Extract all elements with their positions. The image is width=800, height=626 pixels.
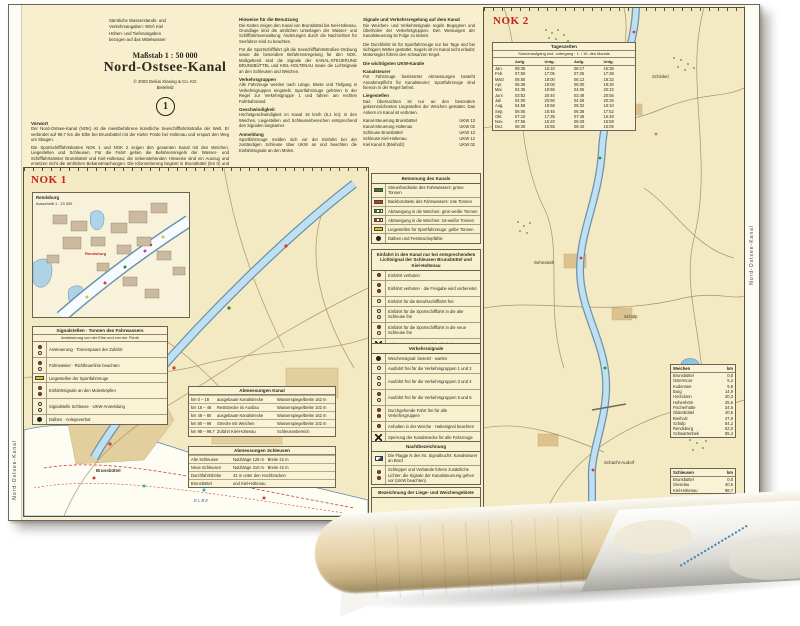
chart-sheet: Nord-Ostsee-Kanal Nord-Ostsee-Kanal Sämt… [8, 4, 760, 521]
inset-title: Rendsburg [36, 195, 59, 200]
city-label: Brunsbüttel [96, 468, 121, 473]
table-subtitle: Sonnenaufgang und -untergang · 1. / 15. … [493, 51, 635, 58]
bridges [590, 94, 626, 410]
legend-row: Ausfahrt frei für die Verkehrsgruppen 1 … [372, 363, 480, 373]
table-title: Abmessungen Schleusen [189, 447, 335, 455]
legend-symbol [372, 452, 386, 465]
town-label: Schacht-Audorf [604, 460, 634, 465]
copyright-line: © 2003 Delius Klasing & Co. KG [133, 79, 196, 84]
issuer-note-1: Sämtliche Wasserstands- undVerkehrsangab… [109, 18, 221, 29]
legend-symbol [372, 323, 386, 338]
roll-map-land [728, 532, 800, 582]
copyright-place: Bielefeld [157, 85, 174, 90]
note-section: Die wichtigsten UKW-Kanäle [363, 61, 475, 66]
legend-symbol [33, 358, 47, 373]
sheet-number-badge: 1 [156, 97, 175, 116]
legend-symbol [372, 390, 386, 405]
legend-symbol [372, 271, 386, 280]
table-row: Durchfahrtshöhe42 m unter den Hochbrücke… [189, 471, 335, 479]
legend-row: Schlepper und Verbände führen zusätzlich… [372, 465, 480, 484]
legend-symbol [33, 399, 47, 414]
nok1-legend-box: Signalstellen · Tonnen des Fahrwassers A… [32, 326, 168, 425]
issuer-line: Verkehrsangaben: WSÄ Kiel [109, 24, 221, 30]
legend-row: Einfahrt für die Sportschifffahrt in die… [372, 306, 480, 322]
sidings-distance-table: Weichen km Brunsbüttel0,0Ostermoor5,2Kud… [670, 364, 736, 438]
daylight-timetable: Tageszeiten Sonnenaufgang und -untergang… [492, 42, 636, 131]
legend-section-traffic-signals: Verkehrssignale Weichensignal: besetzt ·… [371, 343, 481, 456]
legend-row: Einfahrt verboten · die Freigabe wird vo… [372, 280, 480, 296]
legend-symbol [33, 383, 47, 398]
note-section: LiegestellenDas Übernachten ist nur an d… [363, 93, 475, 115]
table-header: Weichen km [671, 365, 735, 373]
note-section: KanalsteurerFür Fahrzeuge bestimmter Abm… [363, 69, 475, 91]
inset-scale: Ausschnitt 1 : 20 000 [36, 201, 72, 206]
panel-label-nok2: NOK 2 [493, 15, 529, 27]
town-label: Schülp [624, 314, 637, 319]
notes-column-1: Hinweise für die BenutzungDie Karten zei… [239, 17, 357, 156]
legend-box-title: Signalstellen · Tonnen des Fahrwassers [33, 327, 167, 335]
legend-row: Backbordseite des Fahrwassers: rote Tonn… [372, 197, 480, 206]
legend-symbol [372, 374, 386, 389]
map-panel-nok1: NOK 1 Brunsbüttel ELBE [23, 167, 369, 517]
table-title: Tageszeiten [493, 43, 635, 51]
note-section: VerkehrsgruppenAlle Fahrzeuge werden nac… [239, 77, 357, 104]
table-row: km 98 – 98,7Zufahrt Kiel-HoltenauSchleus… [189, 427, 335, 435]
legend-symbol [372, 422, 386, 431]
legend-row: Signalstelle Schleuse · UKW-Anmeldung [33, 398, 167, 414]
legend-section-night-marks: Nachtbezeichnung Die Flagge N des Int. S… [371, 441, 481, 485]
timetable-row: Dez.08:3015:5508:4016:05 [493, 124, 635, 129]
town-label: Schinkel [652, 74, 669, 79]
legend-symbol [372, 198, 386, 206]
legend-symbol [372, 354, 386, 363]
legend-symbol [372, 307, 386, 322]
legend-row: Ansteuerung · Tonnenpaare der Zufahrt [33, 342, 167, 357]
inset-map-drawing [33, 193, 189, 317]
roll-body [313, 486, 800, 596]
chart-title: Nord-Ostsee-Kanal [71, 60, 259, 76]
legend-row: Einfahrt für die Sportschifffahrt in die… [372, 322, 480, 338]
table-row: Schwartenbek85,4 [671, 431, 735, 436]
roll-fold-lines [373, 516, 586, 599]
legend-symbol [33, 374, 47, 382]
legend-row: Abzweigung in die Weichen: rot-weiße Ton… [372, 215, 480, 224]
note-section: AnmeldungSportfahrzeuge melden sich vor … [239, 132, 357, 154]
note-section: Signale und Verkehrsregelung auf dem Kan… [363, 17, 475, 39]
legend-row: Einfahrt verboten [372, 271, 480, 280]
legend-row: Dalben · Anlegeverbot [33, 414, 167, 424]
note-section: Die Durchfahrt ist für Sportfahrzeuge nu… [363, 42, 475, 58]
legend-row: Ausfahrt frei für die Verkehrsgruppen 5 … [372, 389, 480, 405]
issuer-note-2: Höhen- und Tiefenangabenbezogen auf das … [109, 31, 221, 42]
vhf-channel-list: Kanal-Steuerung BrunsbüttelUKW 13Kanal-S… [363, 118, 475, 148]
legend-section-entry-signals: Einfahrt in den Kanal nur bei entspreche… [371, 249, 481, 351]
legend-row: Weichensignal: besetzt · warten [372, 354, 480, 363]
legend-symbol [33, 342, 47, 357]
table-row: km 0 – 18ausgebaute KanalstreckeWassersp… [189, 395, 335, 403]
town-label: Sehestedt [534, 260, 554, 265]
legend-row: Abzweigung in die Weichen: grün-weiße To… [372, 206, 480, 215]
note-section: GeschwindigkeitHöchstgeschwindigkeit im … [239, 107, 357, 129]
chart-scale: Maßstab 1 : 50 000 [89, 51, 241, 60]
inset-blocks [47, 203, 185, 298]
table-row: km 80 – 98Strecke mit WeichenWasserspieg… [189, 419, 335, 427]
table-row: Neue SchleusenNutzlänge 310 m · Breite 4… [189, 463, 335, 471]
issuer-line: bezogen auf das Mittelwasser [109, 37, 221, 43]
left-margin-title: Nord-Ostsee-Kanal [12, 440, 18, 500]
note-section: Hinweise für die BenutzungDie Karten zei… [239, 17, 357, 44]
legend-symbol [372, 466, 386, 484]
table-row: km 18 – 48Reststrecke im AusbauWasserspi… [189, 403, 335, 411]
legend-symbol [372, 184, 386, 197]
timetable-header: Aufg.Untg.Aufg.Untg. [493, 58, 635, 66]
roll-map-land [613, 518, 693, 556]
copyright: © 2003 Delius Klasing & Co. KG Bielefeld [89, 79, 241, 91]
table-row: km 48 – 80ausgebaute KanalstreckeWassers… [189, 411, 335, 419]
legend-section-buoyage: Betonnung des Kanals Steuerbordseite des… [371, 173, 481, 244]
legend-row: Ausfahrt frei für die Verkehrsgruppen 3 … [372, 373, 480, 389]
canal-dimensions-table: Abmessungen Kanal km 0 – 18ausgebaute Ka… [188, 386, 336, 437]
legend-row: Einfahrt für die Berufsschifffahrt frei [372, 296, 480, 306]
legend-symbol [372, 225, 386, 233]
legend-row: Die Flagge N des Int. Signalbuchs: Kanal… [372, 452, 480, 465]
note-section: Für die Sportschifffahrt gilt die Seesch… [239, 47, 357, 74]
legend-symbol [372, 216, 386, 224]
legend-symbol [372, 364, 386, 373]
legend-symbol [372, 281, 386, 296]
river-label: ELBE [194, 498, 209, 503]
intro-paragraph: Der Nord-Ostsee-Kanal (NOK) ist die meis… [31, 126, 229, 143]
legend-row: Dalben und Festmachepfähle [372, 233, 480, 243]
legend-symbol [372, 297, 386, 306]
table-row: Alte SchleusenNutzlänge 125 m · Breite 2… [189, 455, 335, 463]
notes-column-2: Signale und Verkehrsregelung auf dem Kan… [363, 17, 475, 151]
legend-box-subtitle: Ansteuerung von der Elbe und von der För… [33, 335, 167, 342]
town-areas [538, 104, 642, 446]
legend-row: Fahrwasser · Richtfeuerlinie beachten [33, 357, 167, 373]
panel-label-nok1: NOK 1 [31, 174, 67, 186]
legend-row: Steuerbordseite des Fahrwassers: grüne T… [372, 184, 480, 197]
legend-row: Liegestellen der Sportfahrzeuge [33, 373, 167, 382]
legend-symbol [372, 406, 386, 421]
legend-row: Anhalten in der Weiche · Haltesignal bea… [372, 421, 480, 431]
chart-right-margin: Nord-Ostsee-Kanal [744, 5, 759, 520]
legend-symbol [372, 234, 386, 243]
right-margin-title: Nord-Ostsee-Kanal [749, 225, 755, 285]
legend-row: Einfahrtsignale an den Molenköpfen [33, 382, 167, 398]
roll-outer-sheet [577, 496, 800, 592]
table-row: Brunsbüttelund Kiel-Holtenau [189, 479, 335, 487]
table-header: Schleusen km [671, 469, 735, 477]
table-title: Abmessungen Kanal [189, 387, 335, 395]
map-panel-nok2: NOK 2 Schinkel Sehestedt Schülp Schacht-… [483, 7, 745, 517]
legend-symbol [372, 207, 386, 215]
legend-row: Liegestellen für Sportfahrzeuge: gelbe T… [372, 224, 480, 233]
lock-dimensions-table: Abmessungen Schleusen Alte SchleusenNutz… [188, 446, 336, 488]
inset-canal [61, 221, 189, 317]
legend-row: Durchgehende Fahrt frei für alle Verkehr… [372, 405, 480, 421]
chart-left-margin: Nord-Ostsee-Kanal [9, 5, 22, 520]
vhf-row: Kiel Kanal II (Breiholz)UKW 02 [363, 142, 475, 148]
inset-city-label: Rendsburg [85, 251, 106, 256]
legend-symbol [33, 415, 47, 424]
inset-map: Rendsburg Ausschnitt 1 : 20 000 Rendsbur… [32, 192, 190, 318]
